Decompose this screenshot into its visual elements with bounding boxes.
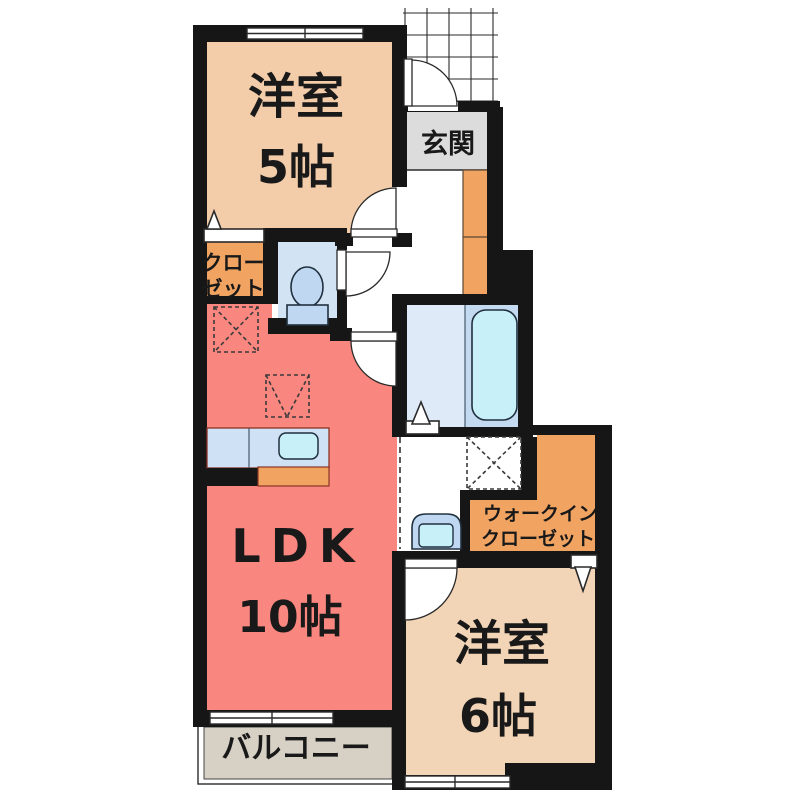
window-icon-western5-top [247,28,363,39]
entrance-door-swing-icon [404,59,458,111]
wic-label-line2: クローゼット [481,527,595,550]
stove-icon [207,468,258,486]
wic-label-line1: ウォークイン [483,503,597,525]
western5-size-label: 5帖 [257,140,335,194]
floor-plan: 洋室 5帖 玄関 クロー ゼット LDK 10帖 ウォークイン クローゼット 洋… [0,0,800,800]
western5-label: 洋室 [248,69,344,125]
western6-label: 洋室 [454,616,550,672]
bathtub-icon [465,305,517,427]
western6-size-label: 6帖 [459,689,537,743]
kitchen-counter [207,428,329,486]
balcony-label: バルコニー [221,731,370,766]
window-icon-ldk-balcony [210,712,333,724]
closet-label-line2: ゼット [202,277,265,301]
window-icon-western6-bottom [405,776,510,788]
kitchen-sink-icon [279,433,318,459]
counter-base [258,467,329,486]
ldk-label: LDK [231,519,364,573]
washbasin-icon [412,514,461,549]
ldk-size-label: 10帖 [237,592,342,643]
entrance-label: 玄関 [421,128,475,160]
washer-space-icon [467,437,521,489]
room-bathroom-floor-left [406,305,465,427]
toilet-door-swing-icon [337,250,390,296]
closet-label-line1: クロー [202,251,265,275]
